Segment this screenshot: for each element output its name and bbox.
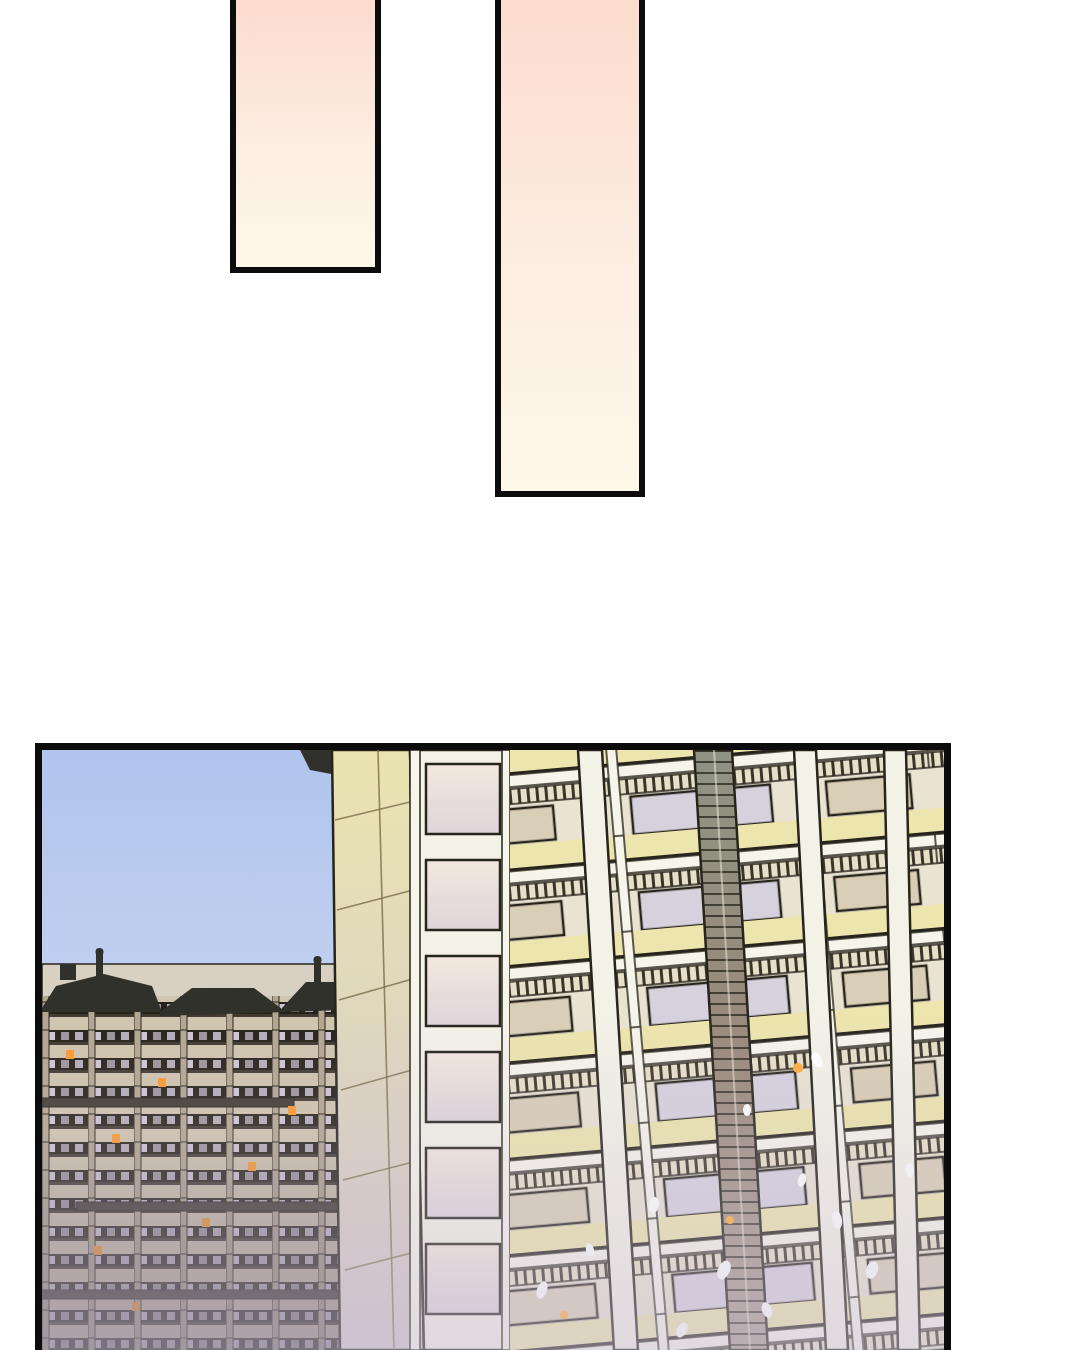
cityscape-illustration <box>42 750 944 1350</box>
comic-panel-top-left <box>230 0 381 273</box>
comic-panel-cityscape <box>35 743 951 1350</box>
dusk-haze <box>42 1010 944 1350</box>
comic-page-canvas <box>0 0 1080 1350</box>
comic-panel-top-center <box>495 0 645 497</box>
